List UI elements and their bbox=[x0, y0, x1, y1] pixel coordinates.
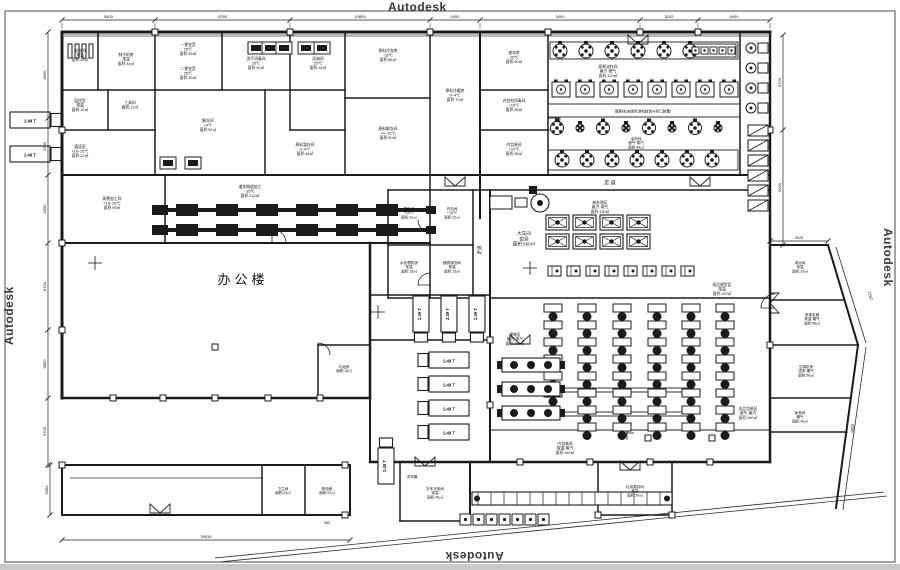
room-label: 速冻库-35℃面积:40㎡ bbox=[506, 50, 523, 64]
truck-symbol: 2.49 T bbox=[469, 296, 485, 342]
double-door-icon bbox=[690, 177, 710, 186]
dimension-value: 380 bbox=[324, 521, 330, 525]
swing-door-icon bbox=[418, 273, 430, 285]
dimension-value: 6000 bbox=[44, 485, 49, 495]
room-label: 工具间面积:12㎡ bbox=[122, 100, 139, 109]
autodesk-watermark-left: Autodesk bbox=[2, 286, 16, 345]
truck-symbol: 2.49 T bbox=[441, 296, 457, 342]
box-machines bbox=[552, 80, 738, 98]
truck-load-label: 2.49 T bbox=[382, 460, 387, 472]
room-label: 二更衣室25℃面积:30㎡ bbox=[180, 66, 197, 80]
filler-machines bbox=[497, 358, 565, 420]
room-label: 参观走廊常温·暖气面积:58㎡ bbox=[804, 312, 820, 325]
truck-load-label: 2.49 T bbox=[443, 407, 455, 412]
truck-symbol: 2.49 T bbox=[418, 376, 469, 392]
dimension-value: 9268 bbox=[850, 424, 855, 434]
dimension-value: 10800 bbox=[354, 14, 366, 19]
room-label: 蒸煮线(末端风淋和装袋与封口装置) bbox=[615, 109, 671, 114]
autodesk-watermark-bottom: Autodesk bbox=[445, 549, 504, 563]
room-label: 监控室常温面积:15㎡ bbox=[72, 98, 89, 112]
room-label: 垃圾暂存间常温面积:30㎡ bbox=[626, 484, 644, 497]
truck-symbol: 2.49 T bbox=[418, 400, 469, 416]
room-label: 走 道 bbox=[604, 180, 615, 187]
truck-symbol: 2.49 T bbox=[413, 296, 429, 342]
room-label: 内包间+10℃面积:12㎡ bbox=[444, 206, 460, 219]
truck-symbol: 2.49 T bbox=[418, 424, 469, 440]
autodesk-watermark-top: Autodesk bbox=[388, 0, 447, 14]
truck-load-label: 2.49 T bbox=[417, 308, 422, 320]
room-label: 蒸煮加工间+18~26℃面积:95㎡ bbox=[103, 196, 122, 210]
truck-load-label: 2.49 T bbox=[443, 359, 455, 364]
room-label: 油炸线燃气·蒸汽面积:88㎡ bbox=[628, 136, 644, 149]
dimension-value: 6800 bbox=[42, 204, 47, 214]
room-label: 大车间空调面积:560㎡ bbox=[513, 230, 536, 248]
room-label: 原料解冻间+4~12℃面积:60㎡ bbox=[379, 126, 398, 140]
trucks: 2.49 T2.49 T2.49 T2.49 T2.49 T2.49 T2.49… bbox=[10, 112, 485, 484]
room-label: 速冻隧道加工-35℃面积:210㎡ bbox=[239, 184, 262, 198]
room-label: 洗车棚 bbox=[407, 474, 418, 479]
room-label: 制冷机房常温面积:34㎡ bbox=[118, 52, 135, 66]
dimension-value: 5400 bbox=[104, 14, 114, 19]
truck-load-label: 2.49 T bbox=[24, 153, 36, 158]
room-label: 原料暂存间0~4℃面积:48㎡ bbox=[296, 142, 315, 156]
room-label: 原料冷冻库-18℃面积:86㎡ bbox=[379, 48, 398, 62]
truck-load-label: 2.49 T bbox=[24, 119, 36, 124]
room-label: 配电房面积:22㎡ bbox=[319, 486, 335, 495]
truck-symbol: 2.49 T bbox=[10, 112, 61, 128]
room-label: 成品理货区常温面积:120㎡ bbox=[713, 282, 732, 296]
room-label: 洗手消毒间25℃面积:30㎡ bbox=[247, 56, 266, 70]
freezer-tunnel-lines bbox=[152, 204, 436, 236]
double-door-icon bbox=[770, 293, 779, 313]
room-label: 叉车充电间常温面积:45㎡ bbox=[426, 486, 444, 499]
room-label: 冻品包装区电气·蒸汽面积:260㎡ bbox=[739, 406, 758, 420]
room-label: 空调机房送风·暖气面积:56㎡ bbox=[798, 364, 814, 377]
truck-symbol: 2.49 T bbox=[10, 146, 61, 162]
room-label: 灌装区蒸汽·电气面积:150㎡ bbox=[506, 332, 525, 346]
room-label: 解冻间+4℃面积:52㎡ bbox=[200, 118, 217, 132]
dimension-value: 29015 bbox=[200, 534, 212, 539]
dimension-value: 8700 bbox=[42, 281, 47, 291]
dimension-value: 5700 bbox=[42, 141, 47, 151]
room-label: 值班室+18~26℃面积:22㎡ bbox=[71, 144, 88, 158]
small-machine-row bbox=[548, 266, 694, 276]
room-label: 垃圾房面积:18㎡ bbox=[336, 364, 352, 373]
room-label: 蒸煮油炸间蒸汽·燃气面积:420㎡ bbox=[599, 64, 618, 78]
cad-floor-plan: 2.49 T2.49 T2.49 T2.49 T2.49 T2.49 T2.49… bbox=[0, 0, 900, 570]
dimension-value: 5750 bbox=[777, 77, 782, 87]
right-wall-machines bbox=[746, 43, 768, 211]
dimension-value: 8600 bbox=[42, 70, 47, 80]
truck-load-label: 2.49 T bbox=[445, 308, 450, 320]
dimension-value: 6800 bbox=[42, 359, 47, 369]
truck-symbol: 2.49 T bbox=[418, 352, 469, 368]
room-label: 淋浴间常温面积:33㎡ bbox=[792, 260, 808, 273]
dimension-value: 5400 bbox=[730, 14, 740, 19]
machine-grid bbox=[546, 215, 650, 249]
room-label: 走道 bbox=[476, 245, 483, 254]
truck-symbol: 2.49 T bbox=[378, 438, 394, 484]
room-label: 卫生间面积:23㎡ bbox=[275, 486, 291, 495]
vertical-process-lines bbox=[544, 304, 734, 440]
dimension-value: 5250 bbox=[218, 14, 228, 19]
truck-load-label: 2.49 T bbox=[473, 308, 478, 320]
room-label: 器具清洗间常温面积:15㎡ bbox=[443, 260, 461, 273]
truck-load-label: 2.49 T bbox=[443, 431, 455, 436]
room-label: 前处理区蒸汽·电气面积:130㎡ bbox=[591, 200, 610, 214]
room-label: 内包装间+10℃面积:38㎡ bbox=[506, 142, 523, 156]
floor-plan-svg: 2.49 T2.49 T2.49 T2.49 T2.49 T2.49 T2.49… bbox=[0, 0, 900, 570]
room-label: 休息间暖气面积:40㎡ bbox=[792, 410, 808, 423]
dimension-value: 3242 bbox=[665, 14, 675, 19]
room-label: 原料冷藏库0~4℃面积:70㎡ bbox=[446, 88, 465, 102]
room-label: 水处理机房常温面积:15㎡ bbox=[400, 260, 418, 273]
dimension-value: 5400 bbox=[451, 14, 461, 19]
dimension-value: 3025 bbox=[795, 236, 803, 240]
walls bbox=[62, 32, 858, 521]
dimension-value: 6700 bbox=[42, 426, 47, 436]
dimension-value: 7262 bbox=[867, 291, 875, 302]
room-label: 一更衣室25℃面积:39㎡ bbox=[180, 42, 197, 56]
double-door-icon bbox=[150, 504, 170, 513]
truck-load-label: 2.49 T bbox=[443, 383, 455, 388]
room-label: 内包材消毒间+10℃面积:35㎡ bbox=[503, 98, 526, 112]
autodesk-watermark-right: Autodesk bbox=[881, 228, 895, 287]
room-label: 办公楼 bbox=[217, 272, 268, 287]
room-label: 内包装间常温·蒸汽面积:160㎡ bbox=[556, 441, 575, 455]
dimension-value: 5400 bbox=[556, 14, 566, 19]
double-door-icon bbox=[445, 177, 465, 186]
dimension-value: 5000 bbox=[777, 182, 782, 192]
room-label: 风淋间25℃面积:18㎡ bbox=[310, 56, 327, 70]
